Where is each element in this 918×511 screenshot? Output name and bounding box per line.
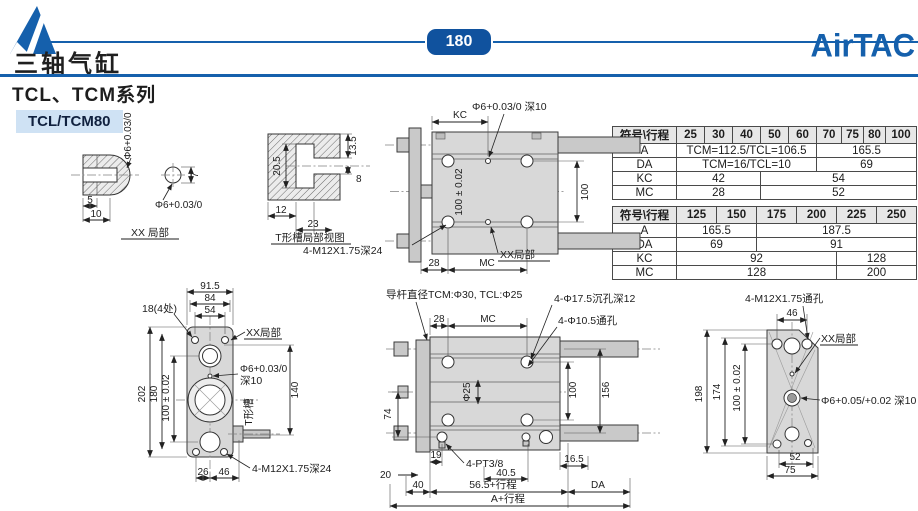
dia-label-vertical: Φ6+0.03/0 xyxy=(123,112,134,160)
dim-91-5: 91.5 xyxy=(200,281,220,292)
dim-40: 40 xyxy=(412,480,424,491)
dim-100-tol: 100 ± 0.02 xyxy=(161,374,172,422)
cell: 128 xyxy=(677,266,837,280)
cell: TCM=112.5/TCL=106.5 xyxy=(677,144,817,158)
corner-note: 18(4处) xyxy=(142,303,177,315)
through-hole-note: 4-Φ10.5通孔 xyxy=(558,314,618,327)
dim-100-tol: 100 ± 0.02 xyxy=(454,168,465,216)
cell: 30 xyxy=(705,127,733,144)
dim-180: 180 xyxy=(149,385,160,402)
top-view-shapes xyxy=(385,128,642,262)
table-row: MC 128 200 xyxy=(613,266,917,280)
front-view-shapes xyxy=(386,337,660,452)
dim-74: 74 xyxy=(383,408,394,420)
xx-label: XX局部 xyxy=(821,332,856,345)
table-row: A TCM=112.5/TCL=106.5 165.5 xyxy=(613,144,917,158)
hole-note: Φ6+0.05/+0.02 深10 xyxy=(821,395,917,407)
dim-12: 12 xyxy=(275,205,287,216)
cell: 128 xyxy=(837,252,917,266)
stroke-table-2: 符号\行程 125 150 175 200 225 250 A 165.5 18… xyxy=(612,206,917,280)
table-row: A 165.5 187.5 xyxy=(613,224,917,238)
hole-note: Φ6+0.03/0 深10 xyxy=(472,101,547,113)
cell: 91 xyxy=(757,238,917,252)
dim-total: A+行程 xyxy=(491,492,526,505)
table-row: MC 28 52 xyxy=(613,186,917,200)
table-row: KC 92 128 xyxy=(613,252,917,266)
dim-20: 20 xyxy=(380,470,392,481)
cell: 69 xyxy=(677,238,757,252)
dim-16-5: 16.5 xyxy=(564,454,584,465)
stroke-table-1: 符号\行程 25 30 40 50 60 70 75 80 100 A TCM=… xyxy=(612,126,917,200)
table-header-row: 符号\行程 25 30 40 50 60 70 75 80 100 xyxy=(613,127,917,144)
dim-100: 100 xyxy=(568,381,579,398)
page-number-badge: 180 xyxy=(427,29,491,55)
hole-note-line2: 深10 xyxy=(240,375,262,387)
dim-5: 5 xyxy=(87,195,93,206)
cell: 100 xyxy=(886,127,917,144)
right-end-view-drawing: 4-M12X1.75通孔 46 XX局部 198 174 100 ± 0.02 … xyxy=(695,286,918,511)
cell: 250 xyxy=(877,207,917,224)
dim-mc: MC xyxy=(480,314,496,325)
dim-20-5: 20.5 xyxy=(272,156,283,176)
dim-156: 156 xyxy=(601,381,612,398)
xx-detail-caption: XX 局部 xyxy=(131,226,169,239)
dim-10: 10 xyxy=(90,209,102,220)
cell: 28 xyxy=(677,186,761,200)
cell: 165.5 xyxy=(677,224,757,238)
dim-52: 52 xyxy=(789,452,801,463)
dim-40-5: 40.5 xyxy=(496,468,516,479)
cell: 125 xyxy=(677,207,717,224)
cell: 165.5 xyxy=(817,144,917,158)
catalog-page: 180 三轴气缸 AirTAC TCL、TCM系列 TCL/TCM80 符号\行… xyxy=(0,0,918,511)
table-row: DA TCM=16/TCL=10 69 xyxy=(613,158,917,172)
cell: 70 xyxy=(817,127,842,144)
xx-detail-shapes xyxy=(71,155,185,195)
dia-25: Φ25 xyxy=(462,382,473,402)
dim-kc: KC xyxy=(453,110,467,121)
dim-140: 140 xyxy=(290,381,301,398)
cell: 200 xyxy=(837,266,917,280)
table-row: DA 69 91 xyxy=(613,238,917,252)
top-view-drawing: KC Φ6+0.03/0 深10 100 ± 0.02 100 XX局部 4-M… xyxy=(300,96,645,296)
header-rule-bottom xyxy=(0,74,918,77)
hole-note-line1: Φ6+0.03/0 xyxy=(240,364,288,375)
left-end-view-drawing: 91.5 84 54 18(4处) XX局部 202 180 100 ± 0.0… xyxy=(140,282,380,510)
counterbore-note: 4-Φ17.5沉孔深12 xyxy=(554,292,635,305)
cell: 75 xyxy=(842,127,864,144)
cell: 175 xyxy=(757,207,797,224)
cell: 52 xyxy=(761,186,917,200)
rod-diameter-note: 导杆直径TCM:Φ30, TCL:Φ25 xyxy=(386,288,523,301)
dim-100: 100 xyxy=(580,183,591,200)
dim-198: 198 xyxy=(694,385,705,402)
cell: 40 xyxy=(733,127,761,144)
cell: 50 xyxy=(761,127,789,144)
dia-label-circle: Φ6+0.03/0 xyxy=(155,200,203,211)
dim-7: 7 xyxy=(190,172,201,178)
dim-mc: MC xyxy=(479,258,495,269)
series-subtitle: TCL、TCM系列 xyxy=(12,80,156,107)
thread-note: 4-M12X1.75通孔 xyxy=(745,292,824,305)
cell: 187.5 xyxy=(757,224,917,238)
dim-174: 174 xyxy=(712,383,723,400)
dim-46: 46 xyxy=(218,467,230,478)
dim-100-tol: 100 ± 0.02 xyxy=(732,364,743,412)
cell: TCM=16/TCL=10 xyxy=(677,158,817,172)
cell: 200 xyxy=(797,207,837,224)
xx-detail-drawing: 5 10 Φ6+0.03/0 7 Φ6+0.03/0 XX 局部 xyxy=(55,108,235,243)
thread-note: 4-M12X1.75深24 xyxy=(252,463,332,475)
cell: 54 xyxy=(761,172,917,186)
cell: 69 xyxy=(817,158,917,172)
table-header-row: 符号\行程 125 150 175 200 225 250 xyxy=(613,207,917,224)
dim-75: 75 xyxy=(784,465,796,476)
dim-stroke: 56.5+行程 xyxy=(469,478,517,491)
dim-28: 28 xyxy=(428,258,440,269)
cell: 60 xyxy=(789,127,817,144)
thread-note: 4-M12X1.75深24 xyxy=(303,245,383,257)
xx-label: XX局部 xyxy=(500,248,535,261)
xx-label: XX局部 xyxy=(246,326,281,339)
cell: 92 xyxy=(677,252,837,266)
dim-46: 46 xyxy=(786,308,798,319)
dim-84: 84 xyxy=(204,293,216,304)
cell: 42 xyxy=(677,172,761,186)
dim-202: 202 xyxy=(137,385,148,402)
cell: 225 xyxy=(837,207,877,224)
dim-da: DA xyxy=(591,480,605,491)
front-view-drawing: 导杆直径TCM:Φ30, TCL:Φ25 28 MC 4-Φ17.5沉孔深12 … xyxy=(378,286,668,511)
t-slot-label: T形槽 xyxy=(243,398,255,426)
dim-26: 26 xyxy=(197,467,209,478)
cell: 80 xyxy=(864,127,886,144)
dim-19: 19 xyxy=(430,450,442,461)
cell: 150 xyxy=(717,207,757,224)
dim-54: 54 xyxy=(204,305,216,316)
right-view-shapes xyxy=(767,322,818,464)
cell: 25 xyxy=(677,127,705,144)
table-row: KC 42 54 xyxy=(613,172,917,186)
brand-wordmark: AirTAC xyxy=(811,27,915,65)
dim-28: 28 xyxy=(433,314,445,325)
